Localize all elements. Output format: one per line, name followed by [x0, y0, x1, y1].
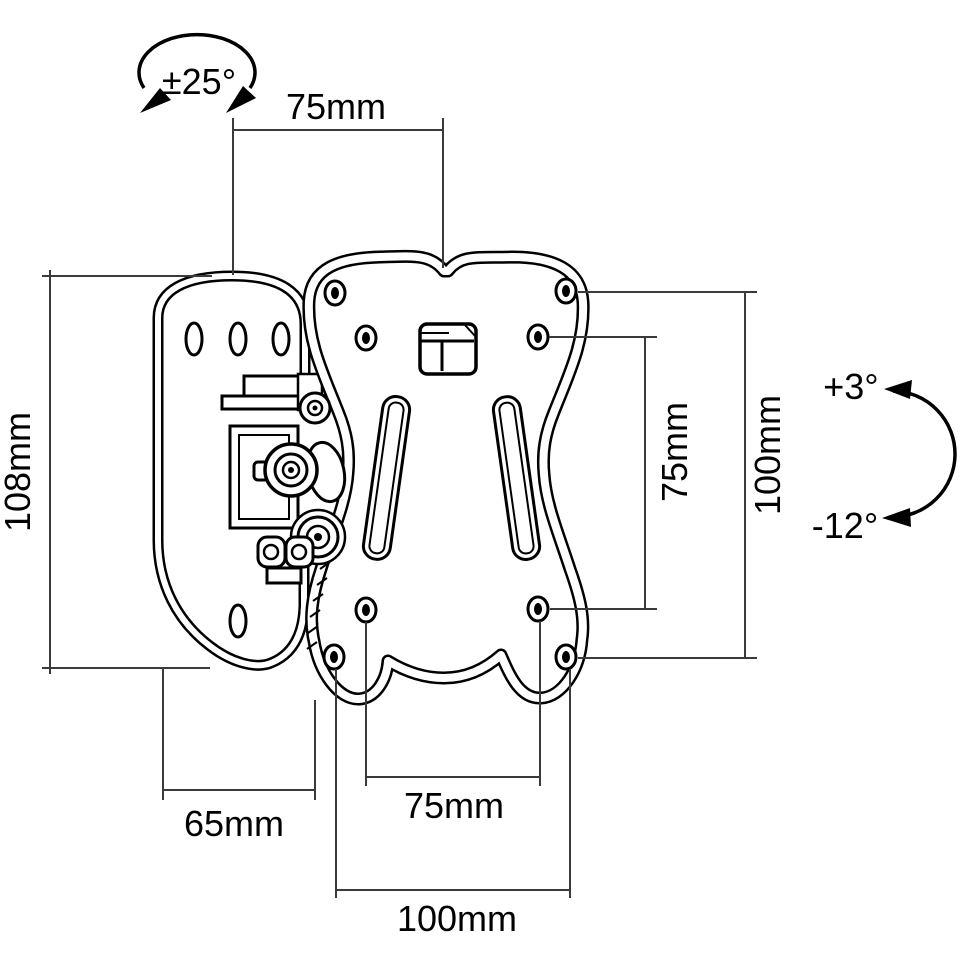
tilt-arrow-up	[884, 380, 912, 399]
vesa-hole-outer-tr	[556, 279, 576, 303]
tilt-down-label: -12°	[812, 505, 878, 546]
side-plate-height-label: 100mm	[747, 395, 788, 515]
tilt-arrow-down	[882, 508, 911, 527]
tilt-up-label: +3°	[823, 366, 878, 407]
top-width-label: 75mm	[286, 86, 386, 127]
bracket-dimension-diagram: ±25° 75mm 108mm 75mm 100mm +3° -12° 65mm…	[0, 0, 961, 961]
bottom-hole-spacing-label: 75mm	[404, 785, 504, 826]
center-clip	[420, 324, 476, 374]
vesa-hole-outer-br	[556, 645, 576, 669]
side-hole-spacing-label: 75mm	[654, 402, 695, 502]
vesa-plate	[307, 256, 583, 699]
vesa-hole-inner-tr	[528, 325, 548, 349]
tilt-annotation	[882, 380, 955, 527]
swivel-label: ±25°	[162, 61, 236, 102]
left-height-label: 108mm	[0, 412, 38, 532]
bottom-plate-width-label: 100mm	[397, 898, 517, 939]
tilt-arc	[891, 391, 955, 517]
vesa-hole-outer-bl	[324, 645, 344, 669]
bottom-offset-label: 65mm	[184, 803, 284, 844]
vesa-hole-inner-bl	[356, 598, 376, 622]
vesa-hole-outer-tl	[325, 281, 345, 305]
top-bolt	[300, 393, 330, 423]
dim-bottom-offset	[163, 668, 315, 800]
vesa-hole-inner-br	[528, 597, 548, 621]
diagram-canvas: ±25° 75mm 108mm 75mm 100mm +3° -12° 65mm…	[0, 0, 961, 961]
vesa-hole-inner-tl	[356, 326, 376, 350]
